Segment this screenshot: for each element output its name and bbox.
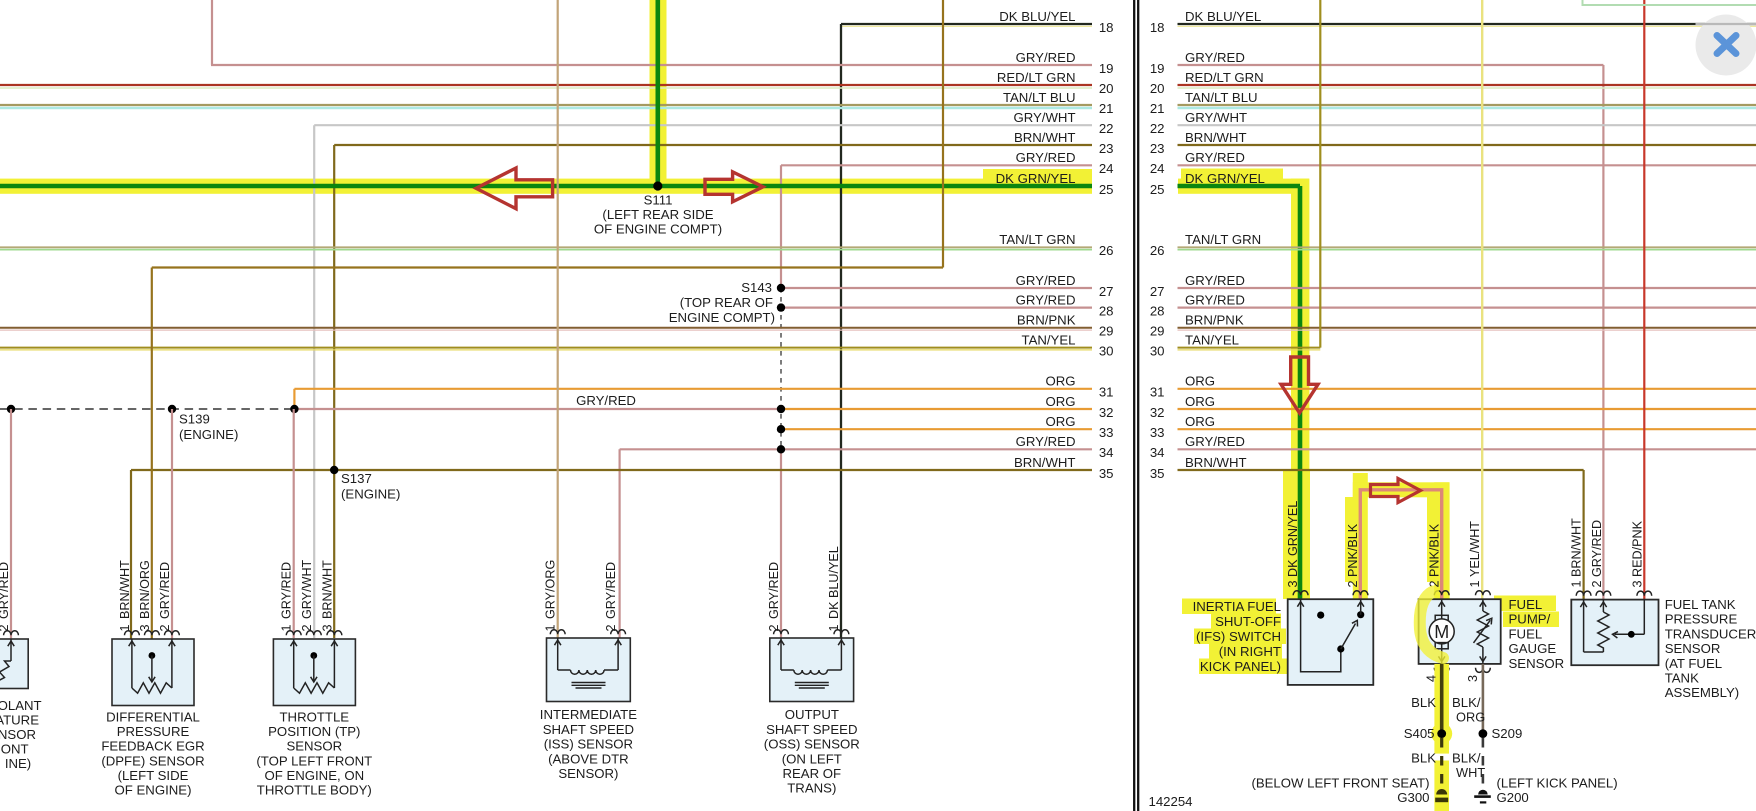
svg-text:S137: S137 [341, 471, 372, 486]
svg-text:(ISS) SENSOR: (ISS) SENSOR [544, 737, 633, 752]
svg-text:S405: S405 [1404, 726, 1435, 741]
svg-text:PRESSURE: PRESSURE [1665, 612, 1738, 627]
svg-text:POSITION (TP): POSITION (TP) [268, 724, 360, 739]
svg-text:2: 2 [1590, 580, 1604, 587]
svg-text:2: 2 [767, 624, 781, 631]
svg-text:ORG: ORG [1185, 414, 1215, 429]
svg-text:RED/LT GRN: RED/LT GRN [1185, 70, 1264, 85]
svg-text:GRY/RED: GRY/RED [767, 562, 781, 619]
svg-text:(ENGINE): (ENGINE) [341, 487, 400, 502]
svg-text:NSOR: NSOR [0, 727, 36, 742]
svg-text:2: 2 [300, 624, 314, 631]
svg-text:(DPFE) SENSOR: (DPFE) SENSOR [101, 753, 204, 768]
svg-text:1: 1 [118, 624, 132, 631]
svg-text:TAN/LT BLU: TAN/LT BLU [1185, 90, 1258, 105]
svg-text:4: 4 [1425, 675, 1439, 682]
svg-text:32: 32 [1150, 405, 1165, 420]
svg-text:GRY/RED: GRY/RED [1185, 273, 1245, 288]
svg-text:35: 35 [1150, 466, 1165, 481]
svg-text:(TOP LEFT FRONT: (TOP LEFT FRONT [256, 753, 372, 768]
svg-text:S139: S139 [179, 412, 210, 427]
svg-text:(LEFT REAR SIDE: (LEFT REAR SIDE [602, 207, 713, 222]
svg-text:INE): INE) [5, 756, 31, 771]
svg-text:30: 30 [1099, 343, 1114, 358]
svg-text:(TOP REAR OF: (TOP REAR OF [680, 295, 773, 310]
svg-text:RED/PNK: RED/PNK [1631, 520, 1645, 577]
svg-text:THROTTLE: THROTTLE [279, 710, 349, 725]
svg-text:26: 26 [1099, 243, 1114, 258]
svg-text:DK GRN/YEL: DK GRN/YEL [996, 171, 1076, 186]
svg-text:27: 27 [1150, 284, 1165, 299]
svg-text:20: 20 [1150, 81, 1165, 96]
svg-text:S143: S143 [741, 280, 772, 295]
svg-text:GRY/RED: GRY/RED [1016, 292, 1076, 307]
svg-text:OF ENGINE): OF ENGINE) [115, 783, 192, 798]
svg-text:OF ENGINE COMPT): OF ENGINE COMPT) [594, 222, 722, 237]
svg-text:TRANSDUCER: TRANSDUCER [1665, 626, 1756, 641]
svg-text:19: 19 [1099, 61, 1114, 76]
svg-text:(OSS) SENSOR: (OSS) SENSOR [764, 737, 860, 752]
svg-text:32: 32 [1099, 405, 1114, 420]
svg-text:GRY/RED: GRY/RED [1016, 150, 1076, 165]
svg-text:ASSEMBLY): ASSEMBLY) [1665, 685, 1740, 700]
svg-text:BLK: BLK [1411, 695, 1436, 710]
svg-text:(LEFT SIDE: (LEFT SIDE [118, 768, 189, 783]
svg-text:34: 34 [1150, 445, 1165, 460]
svg-text:19: 19 [1150, 61, 1165, 76]
svg-text:2: 2 [604, 624, 618, 631]
svg-text:23: 23 [1099, 141, 1114, 156]
svg-text:BRN/WHT: BRN/WHT [118, 560, 132, 619]
svg-text:20: 20 [1099, 81, 1114, 96]
svg-text:1: 1 [827, 624, 841, 631]
svg-text:GRY/RED: GRY/RED [1185, 292, 1245, 307]
svg-text:SENSOR: SENSOR [1665, 641, 1721, 656]
svg-text:1: 1 [1468, 580, 1482, 587]
svg-text:BRN/WHT: BRN/WHT [1014, 455, 1076, 470]
svg-text:FUEL: FUEL [1509, 597, 1543, 612]
svg-text:GRY/RED: GRY/RED [0, 562, 11, 619]
svg-text:24: 24 [1099, 161, 1114, 176]
svg-text:GRY/ORG: GRY/ORG [544, 560, 558, 619]
svg-text:142254: 142254 [1149, 794, 1193, 809]
svg-text:M: M [1434, 622, 1449, 642]
svg-text:31: 31 [1099, 385, 1114, 400]
svg-text:(AT FUEL: (AT FUEL [1665, 656, 1722, 671]
svg-text:INERTIA FUEL: INERTIA FUEL [1193, 599, 1281, 614]
svg-text:DK BLU/YEL: DK BLU/YEL [1185, 9, 1261, 24]
svg-text:DK GRN/YEL: DK GRN/YEL [1185, 171, 1265, 186]
svg-text:2: 2 [1346, 580, 1360, 587]
svg-text:ENGINE COMPT): ENGINE COMPT) [669, 310, 775, 325]
svg-text:SHAFT SPEED: SHAFT SPEED [543, 722, 634, 737]
svg-text:35: 35 [1099, 466, 1114, 481]
svg-text:25: 25 [1099, 182, 1114, 197]
svg-text:GAUGE: GAUGE [1509, 641, 1557, 656]
svg-text:PUMP/: PUMP/ [1509, 612, 1551, 627]
svg-text:G200: G200 [1497, 790, 1529, 805]
svg-text:(BELOW LEFT FRONT SEAT): (BELOW LEFT FRONT SEAT) [1251, 776, 1429, 791]
svg-text:GRY/RED: GRY/RED [1016, 434, 1076, 449]
svg-text:29: 29 [1150, 324, 1165, 339]
svg-text:GRY/RED: GRY/RED [1185, 434, 1245, 449]
svg-text:1: 1 [544, 624, 558, 631]
svg-text:(LEFT KICK PANEL): (LEFT KICK PANEL) [1497, 776, 1618, 791]
svg-text:25: 25 [1150, 182, 1165, 197]
svg-text:1: 1 [1570, 580, 1584, 587]
svg-text:GRY/RED: GRY/RED [1185, 50, 1245, 65]
svg-text:TRANS): TRANS) [787, 781, 836, 796]
svg-text:BLK: BLK [1411, 751, 1436, 766]
svg-text:YEL/WHT: YEL/WHT [1468, 521, 1482, 577]
svg-text:KICK PANEL): KICK PANEL) [1200, 659, 1281, 674]
svg-text:OF ENGINE, ON: OF ENGINE, ON [264, 768, 364, 783]
svg-text:ONT: ONT [1, 741, 29, 756]
svg-text:GRY/RED: GRY/RED [280, 562, 294, 619]
svg-text:BRN/WHT: BRN/WHT [1014, 130, 1076, 145]
svg-text:GRY/RED: GRY/RED [1185, 150, 1245, 165]
svg-text:BRN/WHT: BRN/WHT [1185, 130, 1247, 145]
svg-text:BRN/ORG: BRN/ORG [138, 560, 152, 619]
svg-text:SENSOR): SENSOR) [558, 766, 618, 781]
svg-text:GRY/RED: GRY/RED [576, 393, 636, 408]
svg-text:31: 31 [1150, 385, 1165, 400]
svg-text:ATURE: ATURE [0, 713, 39, 728]
svg-text:30: 30 [1150, 343, 1165, 358]
svg-text:GRY/WHT: GRY/WHT [1013, 110, 1075, 125]
svg-text:2: 2 [0, 624, 11, 631]
svg-text:GRY/RED: GRY/RED [1590, 520, 1604, 577]
svg-text:DK GRN/YEL: DK GRN/YEL [1286, 501, 1300, 577]
svg-text:28: 28 [1150, 303, 1165, 318]
svg-text:3: 3 [320, 624, 334, 631]
svg-text:TAN/YEL: TAN/YEL [1185, 332, 1239, 347]
svg-text:S111: S111 [644, 193, 673, 208]
svg-text:(IN RIGHT: (IN RIGHT [1219, 644, 1281, 659]
svg-text:GRY/WHT: GRY/WHT [300, 559, 314, 619]
svg-text:2: 2 [158, 624, 172, 631]
svg-text:3: 3 [1286, 580, 1300, 587]
svg-text:(IFS) SWITCH: (IFS) SWITCH [1196, 629, 1281, 644]
svg-text:OLANT: OLANT [0, 698, 42, 713]
svg-text:SHUT-OFF: SHUT-OFF [1215, 614, 1281, 629]
svg-text:PRESSURE: PRESSURE [117, 724, 190, 739]
svg-text:21: 21 [1099, 101, 1114, 116]
svg-text:TAN/LT GRN: TAN/LT GRN [1185, 232, 1261, 247]
svg-text:INTERMEDIATE: INTERMEDIATE [540, 707, 637, 722]
svg-text:ORG: ORG [1456, 710, 1485, 725]
svg-text:24: 24 [1150, 161, 1165, 176]
svg-text:BRN/PNK: BRN/PNK [1185, 313, 1244, 328]
svg-text:DK BLU/YEL: DK BLU/YEL [827, 546, 841, 619]
svg-text:SENSOR: SENSOR [1509, 656, 1565, 671]
svg-text:FEEDBACK EGR: FEEDBACK EGR [101, 739, 204, 754]
svg-text:FUEL TANK: FUEL TANK [1665, 597, 1736, 612]
svg-text:GRY/WHT: GRY/WHT [1185, 110, 1247, 125]
svg-text:OUTPUT: OUTPUT [785, 707, 839, 722]
svg-text:THROTTLE BODY): THROTTLE BODY) [257, 783, 372, 798]
svg-text:33: 33 [1150, 425, 1165, 440]
svg-text:ORG: ORG [1185, 394, 1215, 409]
svg-text:18: 18 [1099, 20, 1114, 35]
svg-text:FUEL: FUEL [1509, 626, 1543, 641]
svg-text:29: 29 [1099, 324, 1114, 339]
svg-text:3: 3 [1466, 675, 1480, 682]
svg-text:ORG: ORG [1185, 374, 1215, 389]
svg-text:PNK/BLK: PNK/BLK [1428, 523, 1442, 577]
svg-text:GRY/RED: GRY/RED [1016, 50, 1076, 65]
svg-text:SHAFT SPEED: SHAFT SPEED [766, 722, 857, 737]
svg-text:DK BLU/YEL: DK BLU/YEL [999, 9, 1075, 24]
svg-text:22: 22 [1150, 121, 1165, 136]
svg-text:34: 34 [1099, 445, 1114, 460]
svg-text:33: 33 [1099, 425, 1114, 440]
svg-text:S209: S209 [1492, 726, 1523, 741]
svg-text:GRY/RED: GRY/RED [158, 562, 172, 619]
svg-text:26: 26 [1150, 243, 1165, 258]
svg-text:(ABOVE DTR: (ABOVE DTR [548, 751, 629, 766]
svg-text:BRN/WHT: BRN/WHT [320, 560, 334, 619]
svg-text:BRN/WHT: BRN/WHT [1570, 518, 1584, 577]
svg-text:ORG: ORG [1045, 394, 1075, 409]
svg-text:SENSOR: SENSOR [286, 739, 342, 754]
svg-text:(ENGINE): (ENGINE) [179, 427, 238, 442]
svg-text:(ON LEFT: (ON LEFT [782, 751, 842, 766]
svg-text:BLK/: BLK/ [1452, 695, 1481, 710]
svg-text:GRY/RED: GRY/RED [1016, 273, 1076, 288]
svg-text:RED/LT GRN: RED/LT GRN [997, 70, 1076, 85]
svg-text:TAN/LT BLU: TAN/LT BLU [1003, 90, 1076, 105]
svg-text:TAN/LT GRN: TAN/LT GRN [999, 232, 1075, 247]
svg-text:18: 18 [1150, 20, 1165, 35]
svg-text:ORG: ORG [1045, 374, 1075, 389]
svg-text:21: 21 [1150, 101, 1165, 116]
svg-text:TANK: TANK [1665, 671, 1699, 686]
svg-text:22: 22 [1099, 121, 1114, 136]
svg-text:GRY/RED: GRY/RED [604, 562, 618, 619]
svg-text:WHT: WHT [1456, 765, 1485, 780]
svg-text:TAN/YEL: TAN/YEL [1022, 332, 1076, 347]
svg-text:PNK/BLK: PNK/BLK [1346, 523, 1360, 577]
svg-text:28: 28 [1099, 303, 1114, 318]
svg-text:23: 23 [1150, 141, 1165, 156]
svg-text:1: 1 [280, 624, 294, 631]
svg-text:DIFFERENTIAL: DIFFERENTIAL [106, 710, 200, 725]
svg-text:BRN/WHT: BRN/WHT [1185, 455, 1247, 470]
svg-text:3: 3 [138, 624, 152, 631]
svg-text:REAR OF: REAR OF [782, 766, 841, 781]
svg-text:BLK/: BLK/ [1452, 751, 1481, 766]
svg-text:3: 3 [1631, 580, 1645, 587]
svg-text:BRN/PNK: BRN/PNK [1017, 313, 1076, 328]
svg-text:27: 27 [1099, 284, 1114, 299]
svg-text:ORG: ORG [1045, 414, 1075, 429]
svg-text:G300: G300 [1397, 790, 1429, 805]
